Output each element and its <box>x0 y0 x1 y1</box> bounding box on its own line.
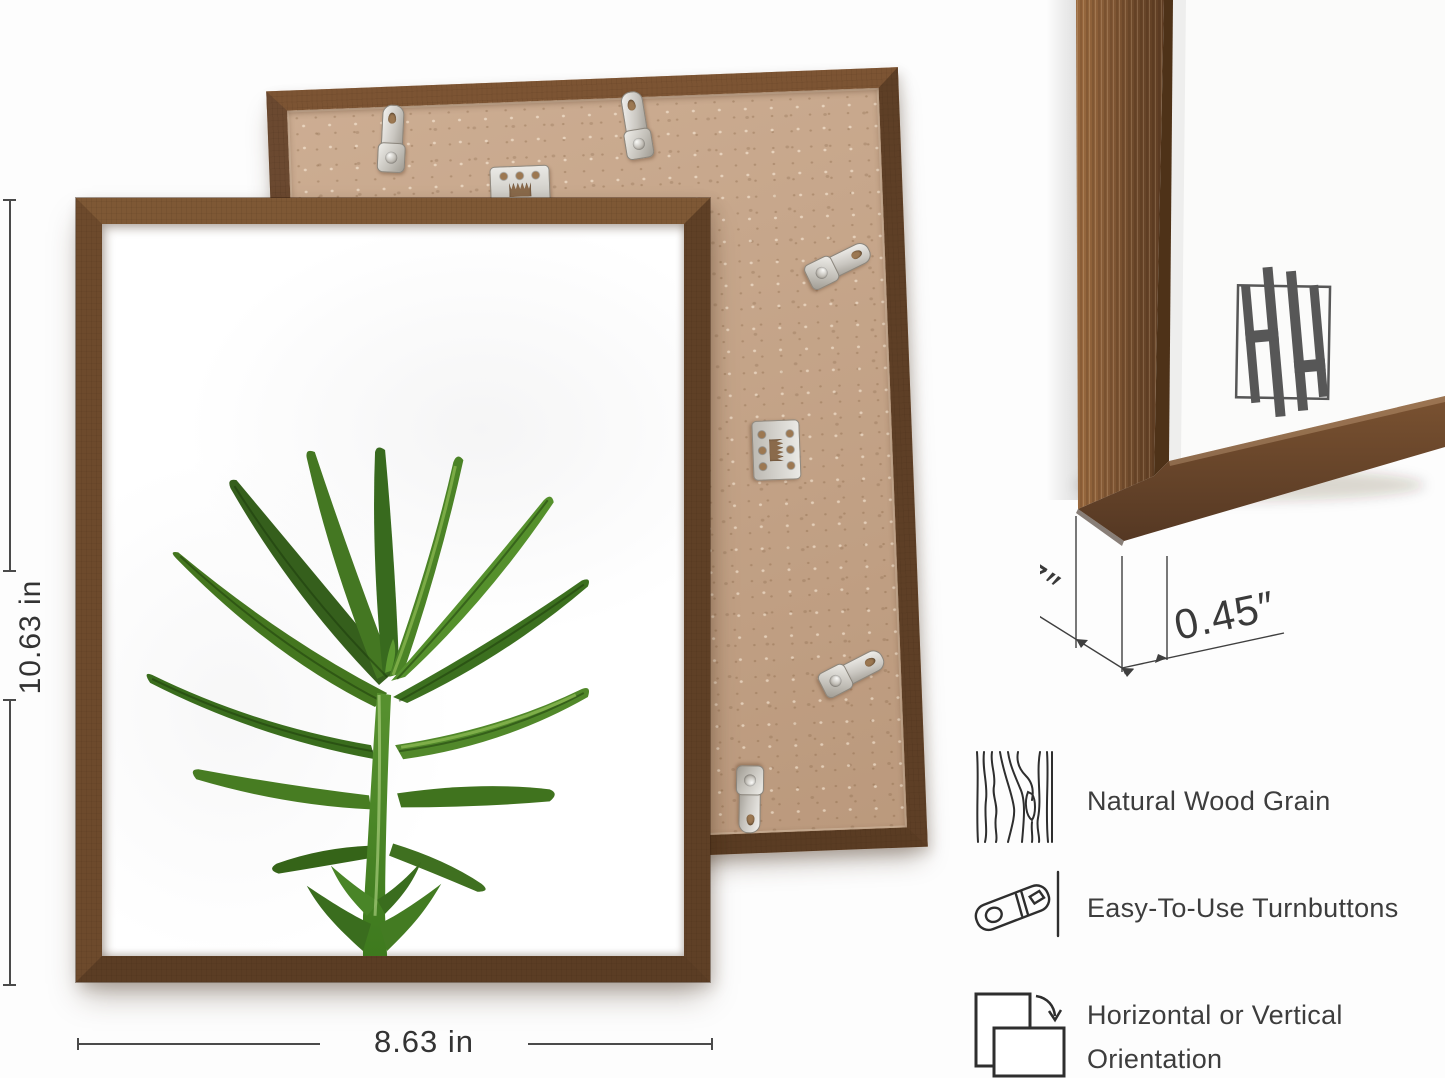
depth-dimension-label: 0.7″ <box>1040 533 1067 610</box>
wood-grain-icon <box>974 750 1054 844</box>
frame-front-view <box>76 198 710 982</box>
orientation-icon <box>972 986 1076 1078</box>
width-dimension-label: 8.63 in <box>320 1024 528 1060</box>
dimension-tick <box>3 199 16 201</box>
feature-label: Easy-To-Use Turnbuttons <box>1087 893 1399 924</box>
sawtooth-hanger <box>751 419 801 481</box>
turnbutton-hardware <box>377 104 406 173</box>
hanger-holes <box>756 427 770 473</box>
product-image: { "dimensions": { "frame_height": "10.63… <box>0 0 1445 1069</box>
wood-grain-texture <box>1076 0 1164 509</box>
hanger-holes <box>496 169 542 183</box>
dimension-tick <box>711 1038 713 1050</box>
hanger-sawtooth-notch <box>509 182 532 197</box>
turnbutton-icon <box>966 868 1070 940</box>
frame-corner-closeup: 0.7″ 0.45″ <box>1040 0 1445 700</box>
dimension-tick <box>77 1038 79 1050</box>
dimension-line <box>528 1043 712 1045</box>
hanger-sawtooth-notch <box>769 439 784 462</box>
dimension-line <box>9 700 11 985</box>
hanger-holes <box>784 426 798 472</box>
frame-print-area <box>102 224 684 956</box>
dimension-line <box>9 200 11 572</box>
feature-label: Natural Wood Grain <box>1087 786 1331 817</box>
corner-picture-surface <box>1169 0 1445 461</box>
turnbutton-screw-plate <box>377 142 406 173</box>
turnbutton-screw-plate <box>736 765 764 795</box>
dimension-tick <box>3 984 16 986</box>
turnbutton-hardware <box>737 765 764 833</box>
turnbutton-screw-plate <box>623 127 655 161</box>
feature-label: Horizontal or Vertical <box>1087 1000 1343 1031</box>
height-dimension-label: 10.63 in <box>14 572 50 702</box>
dracaena-plant-photo <box>132 444 602 956</box>
corner-cast-shadow <box>1046 0 1078 500</box>
dimension-line <box>78 1043 320 1045</box>
feature-label: Orientation <box>1087 1044 1222 1075</box>
face-width-dimension-label: 0.45″ <box>1170 582 1279 649</box>
